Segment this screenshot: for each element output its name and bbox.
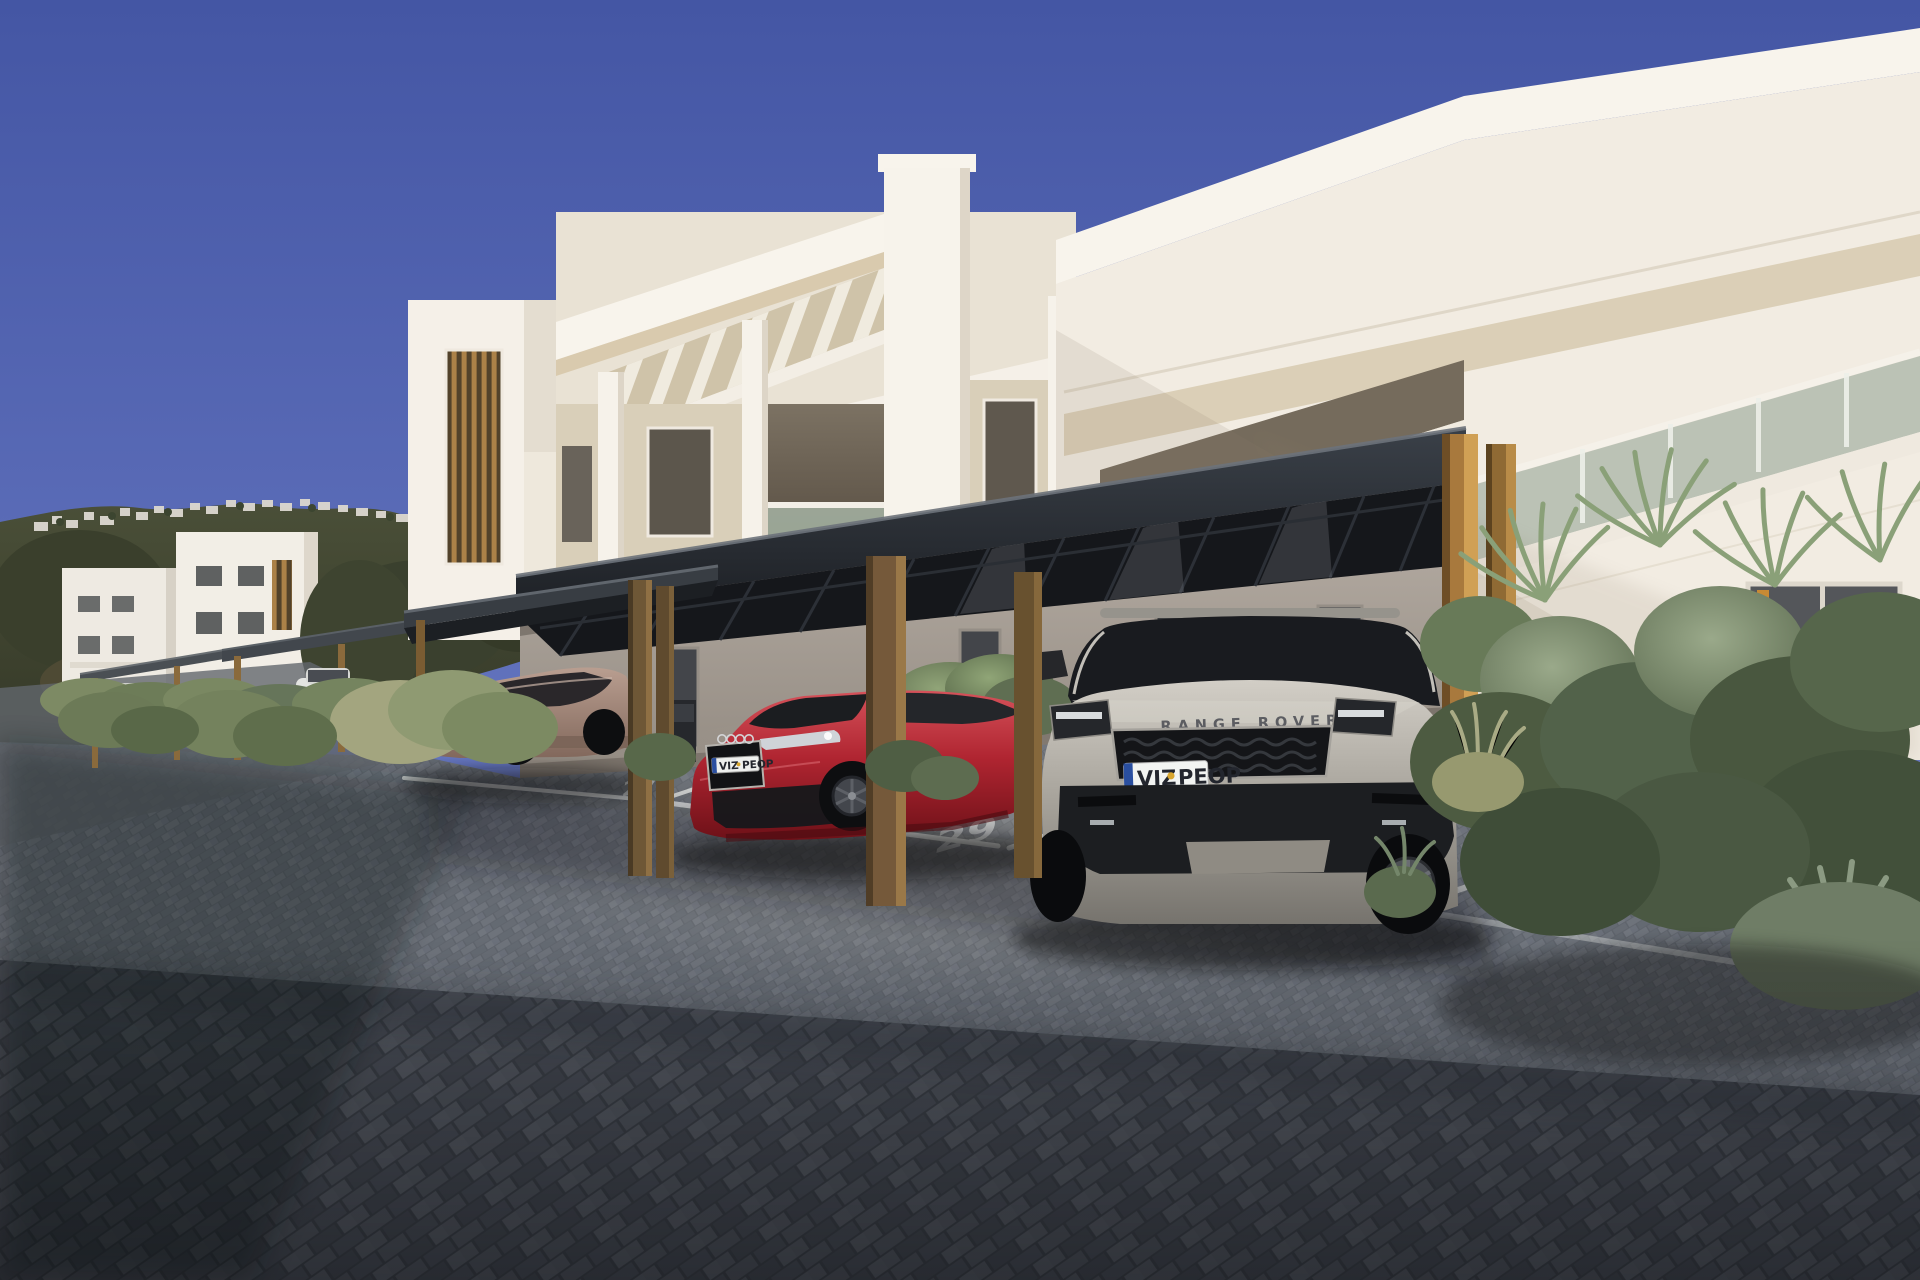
wood-slat-window <box>446 350 502 564</box>
plate-text-left: VIZ <box>719 760 740 773</box>
plate-text-right: PEOP <box>742 758 774 772</box>
headlight-left <box>1050 700 1112 740</box>
bottom-vignette <box>0 940 1920 1280</box>
architectural-render: 27 28 29 30 <box>0 0 1920 1280</box>
skid-plate <box>1186 840 1330 874</box>
render-stage: 27 28 29 30 <box>0 0 1920 1280</box>
upper-window <box>648 428 712 536</box>
wooden-post-pair-a <box>628 580 674 878</box>
small-plant <box>1364 866 1436 918</box>
